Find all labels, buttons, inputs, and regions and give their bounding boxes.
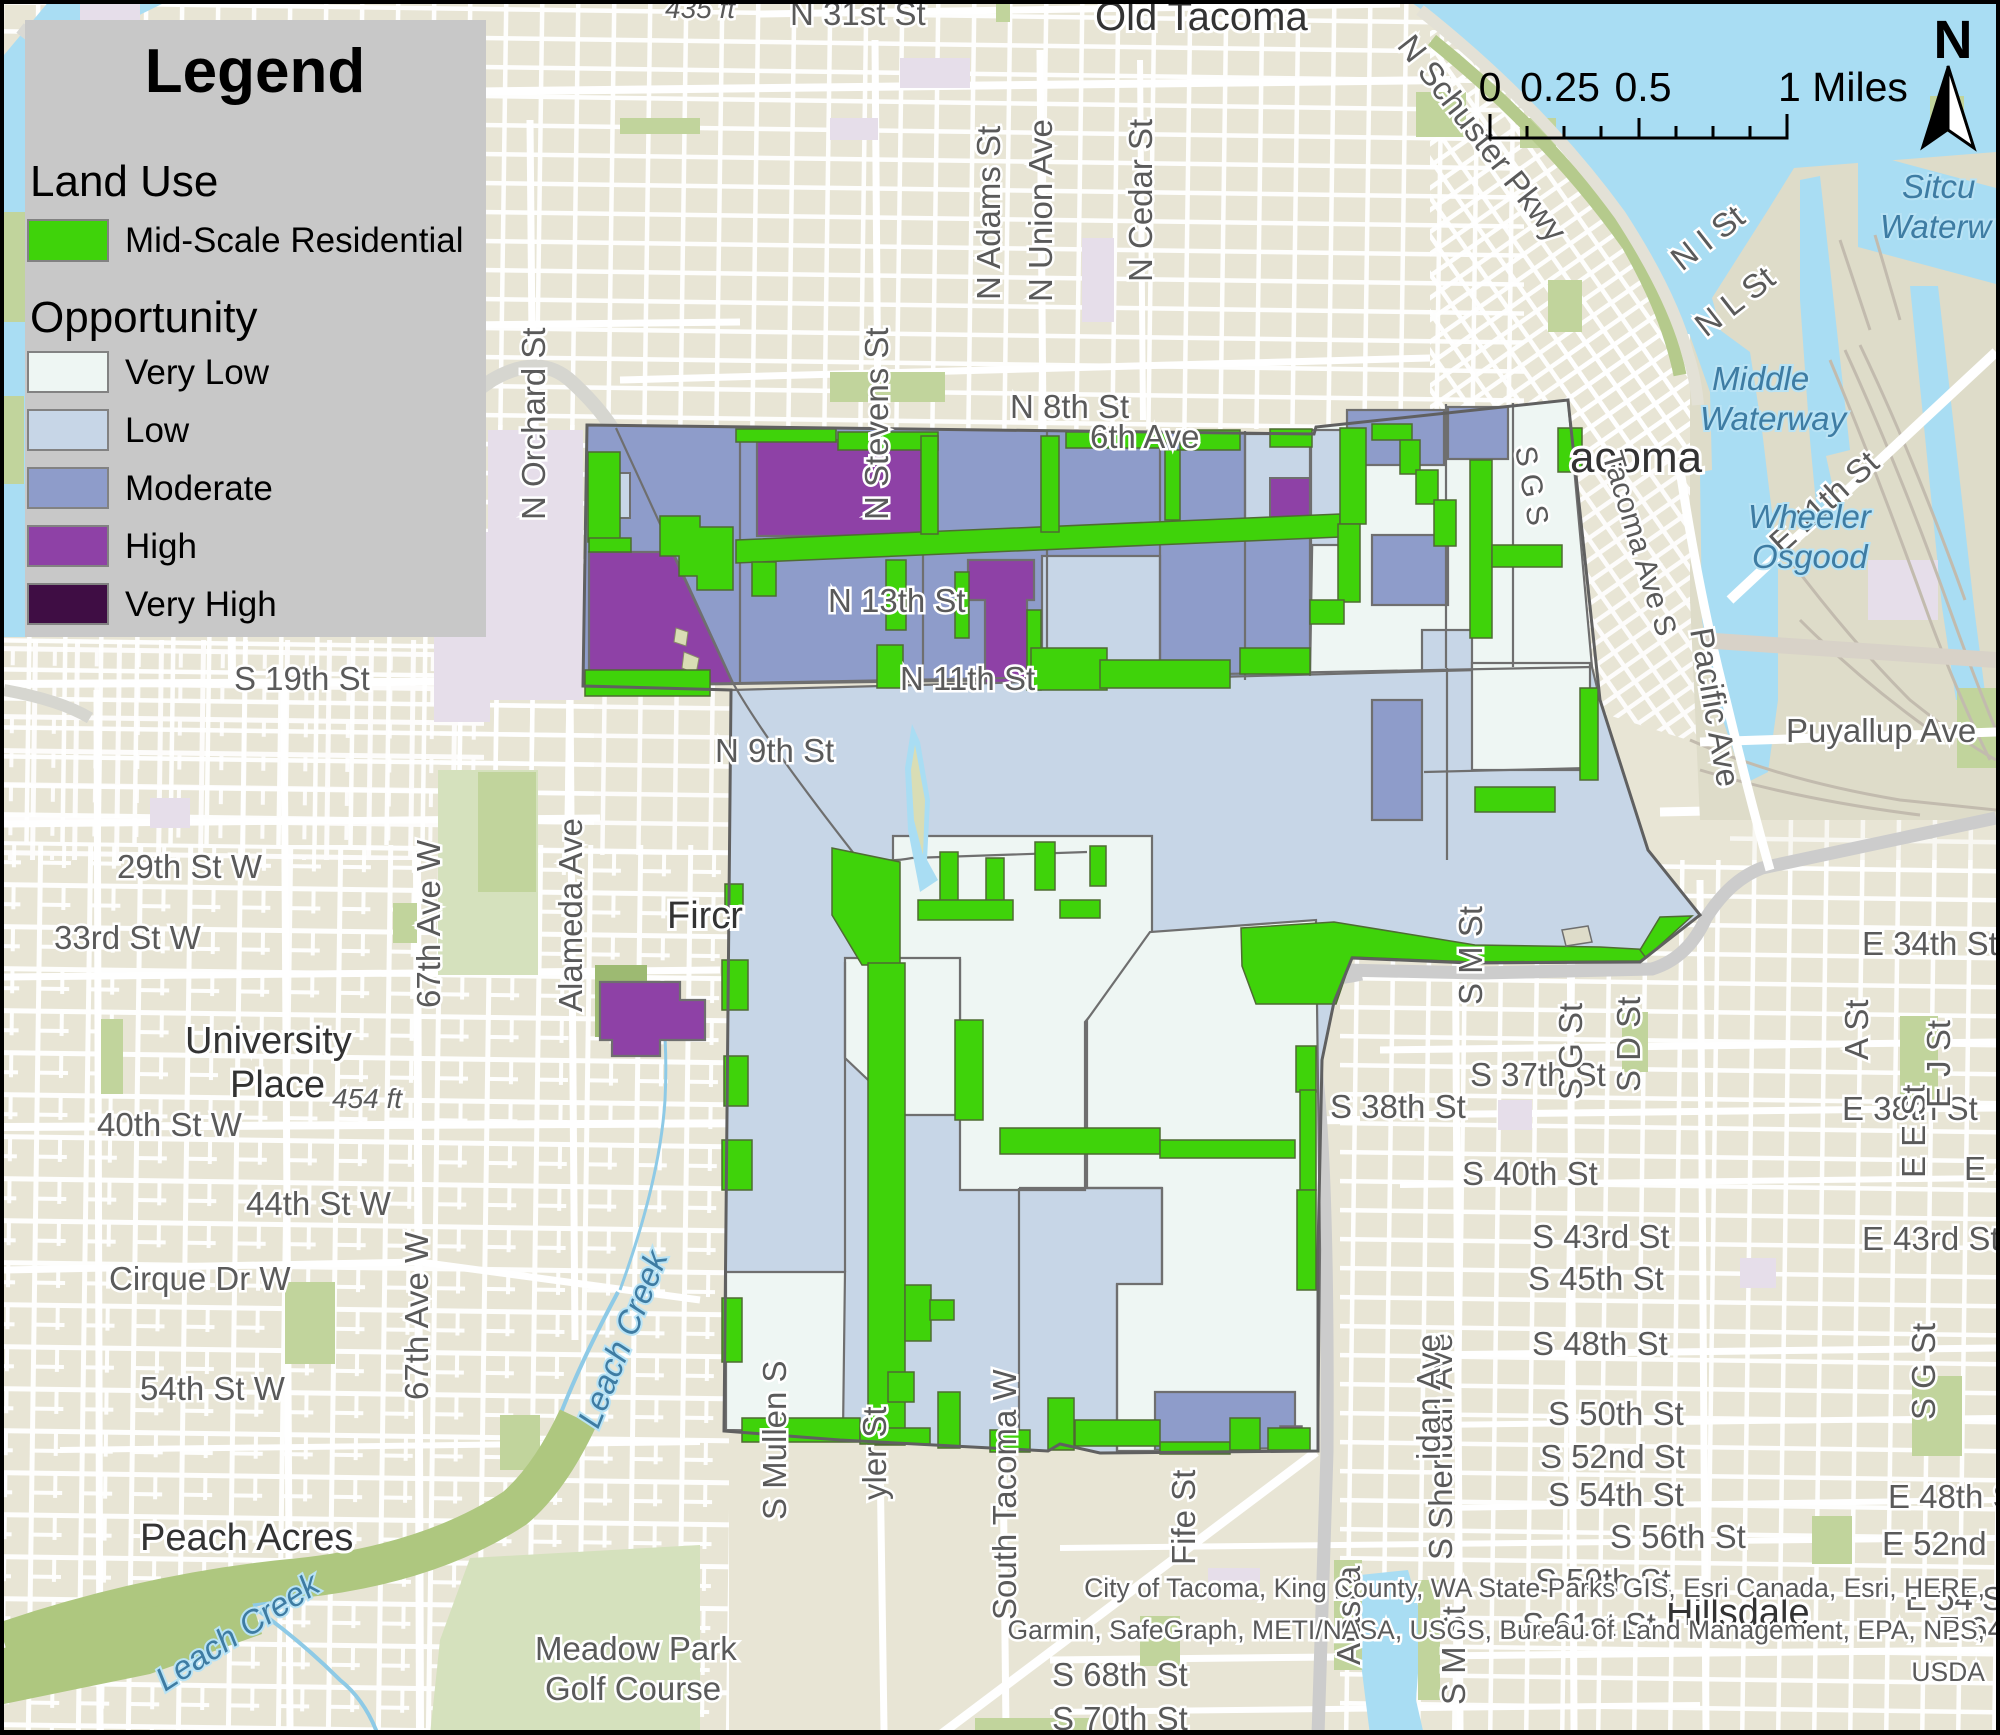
svg-text:E 43rd St: E 43rd St (1862, 1220, 2000, 1257)
svg-text:High: High (125, 527, 197, 566)
svg-text:S D St: S D St (1610, 997, 1647, 1092)
svg-text:S 38th St: S 38th St (1330, 1088, 1466, 1125)
svg-text:Land Use: Land Use (30, 157, 218, 206)
svg-text:City of Tacoma, King County, W: City of Tacoma, King County, WA State Pa… (1084, 1573, 1985, 1603)
svg-text:1 Miles: 1 Miles (1778, 64, 1908, 110)
svg-text:Low: Low (125, 411, 190, 450)
svg-text:N Adams St: N Adams St (970, 126, 1007, 300)
svg-text:S 48th St: S 48th St (1532, 1325, 1668, 1362)
svg-text:S 52nd St: S 52nd St (1540, 1438, 1685, 1475)
svg-text:E 34th St: E 34th St (1862, 925, 1998, 962)
svg-text:N Cedar St: N Cedar St (1122, 119, 1159, 282)
svg-text:S Mullen S: S Mullen S (756, 1360, 793, 1520)
svg-text:S 56th St: S 56th St (1610, 1518, 1746, 1555)
svg-text:USDA: USDA (1911, 1657, 1985, 1687)
svg-text:acoma: acoma (1570, 433, 1703, 482)
svg-text:Sitcu: Sitcu (1902, 168, 1975, 205)
svg-text:N Stevens St: N Stevens St (858, 327, 895, 520)
svg-text:South Tacoma W: South Tacoma W (986, 1368, 1023, 1620)
svg-text:idan Ave: idan Ave (1410, 1334, 1447, 1460)
svg-text:Peach Acres: Peach Acres (140, 1517, 353, 1559)
svg-text:Waterway: Waterway (1700, 400, 1849, 437)
svg-text:S 43rd St: S 43rd St (1532, 1218, 1670, 1255)
svg-text:A St: A St (1838, 999, 1875, 1060)
svg-text:Alameda Ave: Alameda Ave (552, 818, 589, 1012)
svg-text:Waterw: Waterw (1880, 208, 1993, 245)
svg-text:N 13th St: N 13th St (828, 582, 966, 619)
svg-text:N 31st St: N 31st St (790, 0, 926, 32)
svg-text:S 40th St: S 40th St (1462, 1155, 1598, 1192)
svg-text:S 50th St: S 50th St (1548, 1395, 1684, 1432)
svg-text:Old Tacoma: Old Tacoma (1095, 0, 1308, 39)
svg-text:Cirque Dr W: Cirque Dr W (109, 1260, 291, 1297)
svg-text:Very High: Very High (125, 585, 277, 624)
svg-text:0.5: 0.5 (1615, 64, 1672, 110)
svg-text:29th St W: 29th St W (117, 848, 263, 885)
svg-text:Osgood: Osgood (1752, 538, 1869, 575)
svg-text:S 54th St: S 54th St (1548, 1476, 1684, 1513)
svg-text:E J St: E J St (1920, 1020, 1957, 1108)
svg-text:Meadow Park: Meadow Park (535, 1630, 737, 1667)
svg-text:454 ft: 454 ft (332, 1083, 403, 1114)
svg-text:Golf Course: Golf Course (545, 1670, 721, 1707)
svg-text:Middle: Middle (1712, 360, 1809, 397)
svg-text:N Orchard St: N Orchard St (515, 327, 552, 520)
svg-text:Place: Place (230, 1064, 325, 1106)
svg-text:S 68th St: S 68th St (1052, 1656, 1188, 1693)
svg-text:0: 0 (1479, 64, 1502, 110)
svg-text:N: N (1934, 10, 1973, 70)
svg-text:E 52nd St: E 52nd St (1882, 1525, 2000, 1562)
svg-text:Fircr: Fircr (667, 895, 743, 937)
svg-text:University: University (185, 1020, 352, 1062)
svg-text:yler St: yler St (856, 1406, 893, 1500)
svg-text:S G St: S G St (1905, 1323, 1942, 1420)
svg-text:Puyallup Ave: Puyallup Ave (1786, 712, 1976, 749)
svg-text:Very Low: Very Low (125, 353, 270, 392)
svg-text:N Union Ave: N Union Ave (1022, 119, 1059, 302)
svg-text:33rd St W: 33rd St W (54, 919, 202, 956)
svg-text:Fife St: Fife St (1165, 1470, 1202, 1565)
svg-text:Wheeler: Wheeler (1748, 498, 1873, 535)
svg-text:S G St: S G St (1552, 1003, 1589, 1100)
svg-text:67th Ave W: 67th Ave W (398, 1231, 435, 1400)
svg-text:E 48th St: E 48th St (1888, 1478, 2000, 1515)
svg-text:S 19th St: S 19th St (234, 660, 370, 697)
svg-text:S M St: S M St (1452, 906, 1489, 1005)
svg-text:0.25: 0.25 (1520, 64, 1600, 110)
svg-text:Legend: Legend (145, 37, 365, 106)
svg-text:54th St W: 54th St W (140, 1370, 286, 1407)
svg-text:E 40: E 40 (1964, 1150, 2000, 1187)
svg-text:S 45th St: S 45th St (1528, 1260, 1664, 1297)
svg-text:S 70th St: S 70th St (1052, 1700, 1188, 1735)
svg-text:40th St W: 40th St W (97, 1106, 243, 1143)
svg-text:Moderate: Moderate (125, 469, 273, 508)
svg-text:Garmin, SafeGraph, METI/NASA,: Garmin, SafeGraph, METI/NASA, USGS, Bure… (1008, 1615, 1986, 1645)
svg-text:44th St W: 44th St W (246, 1185, 392, 1222)
svg-text:N 9th St: N 9th St (715, 732, 834, 769)
svg-text:Mid-Scale Residential: Mid-Scale Residential (125, 221, 463, 260)
svg-text:67th Ave W: 67th Ave W (410, 839, 447, 1008)
svg-text:6th Ave: 6th Ave (1090, 418, 1200, 455)
svg-text:Opportunity: Opportunity (30, 293, 257, 342)
svg-text:N 11th St: N 11th St (900, 660, 1035, 697)
